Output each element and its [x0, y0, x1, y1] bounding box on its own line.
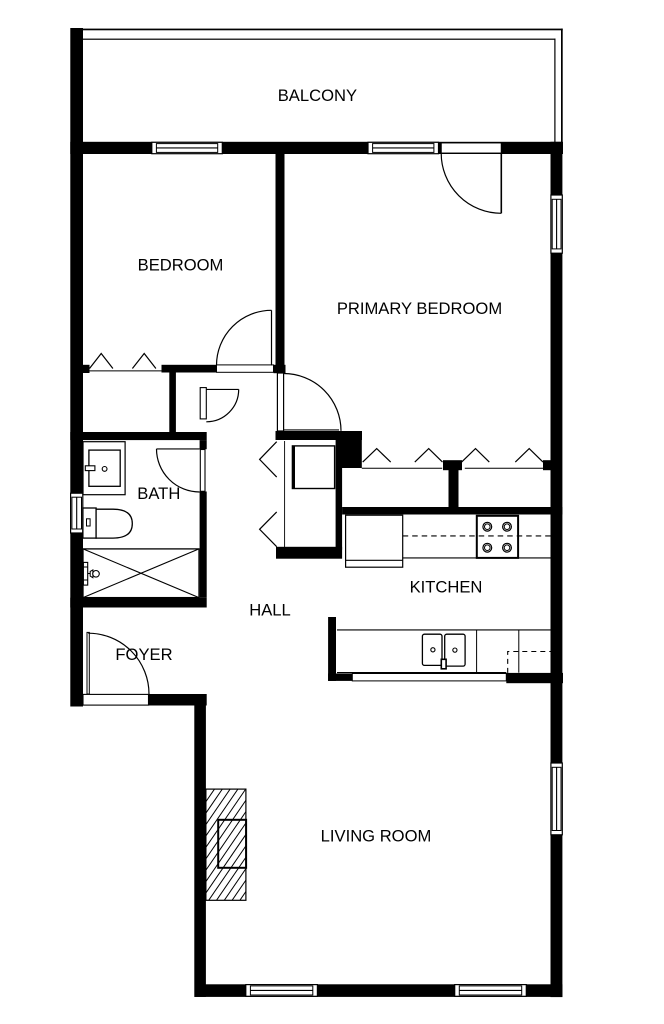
- svg-text:HALL: HALL: [249, 600, 291, 619]
- svg-text:KITCHEN: KITCHEN: [410, 578, 483, 597]
- svg-text:PRIMARY BEDROOM: PRIMARY BEDROOM: [337, 299, 502, 318]
- svg-text:LIVING ROOM: LIVING ROOM: [321, 826, 432, 845]
- svg-text:BALCONY: BALCONY: [278, 86, 357, 105]
- svg-text:BEDROOM: BEDROOM: [138, 256, 224, 275]
- svg-text:BATH: BATH: [137, 484, 180, 503]
- svg-text:FOYER: FOYER: [115, 645, 172, 664]
